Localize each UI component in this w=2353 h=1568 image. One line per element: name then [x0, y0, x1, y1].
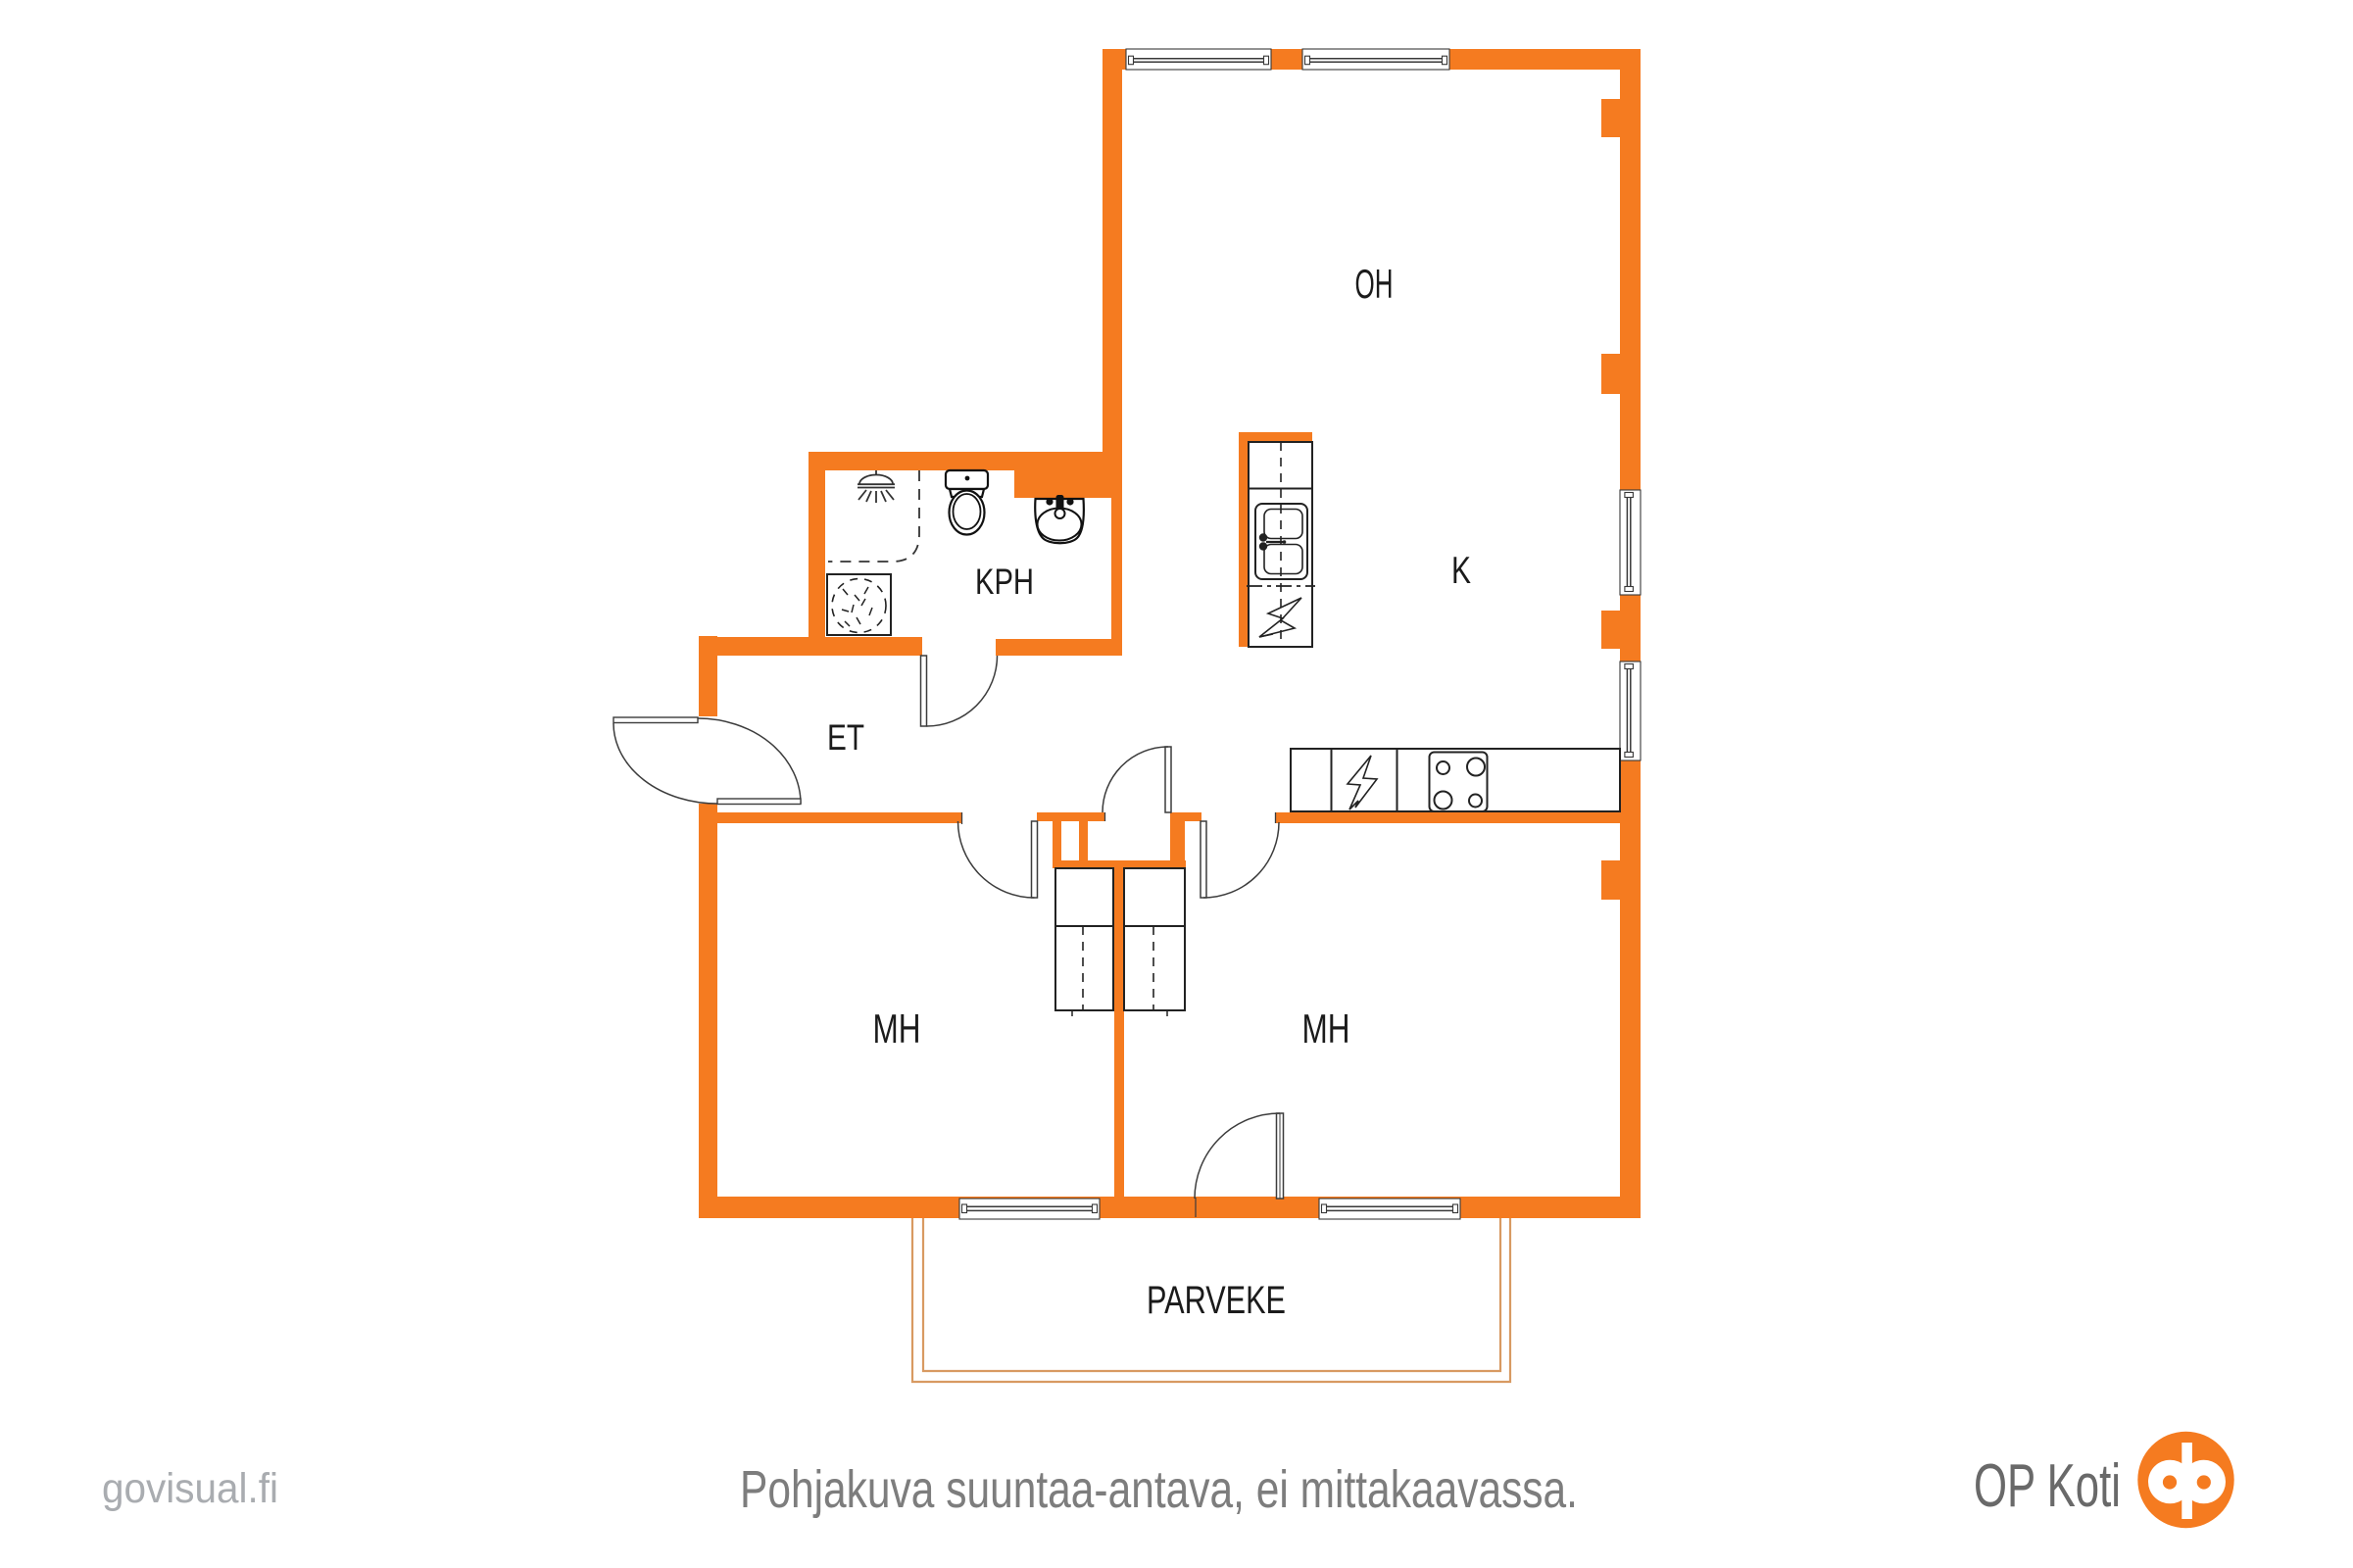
svg-text:ET: ET — [827, 717, 864, 758]
svg-text:govisual.fi: govisual.fi — [102, 1465, 278, 1512]
svg-text:MH: MH — [873, 1005, 921, 1052]
svg-text:OP Koti: OP Koti — [1974, 1452, 2121, 1520]
svg-text:OH: OH — [1355, 261, 1394, 307]
svg-text:K: K — [1451, 550, 1471, 592]
svg-text:PARVEKE: PARVEKE — [1147, 1279, 1286, 1322]
svg-text:Pohjakuva suuntaa-antava, ei m: Pohjakuva suuntaa-antava, ei mittakaavas… — [740, 1460, 1578, 1519]
svg-text:KPH: KPH — [975, 562, 1034, 602]
svg-text:MH: MH — [1302, 1005, 1350, 1052]
